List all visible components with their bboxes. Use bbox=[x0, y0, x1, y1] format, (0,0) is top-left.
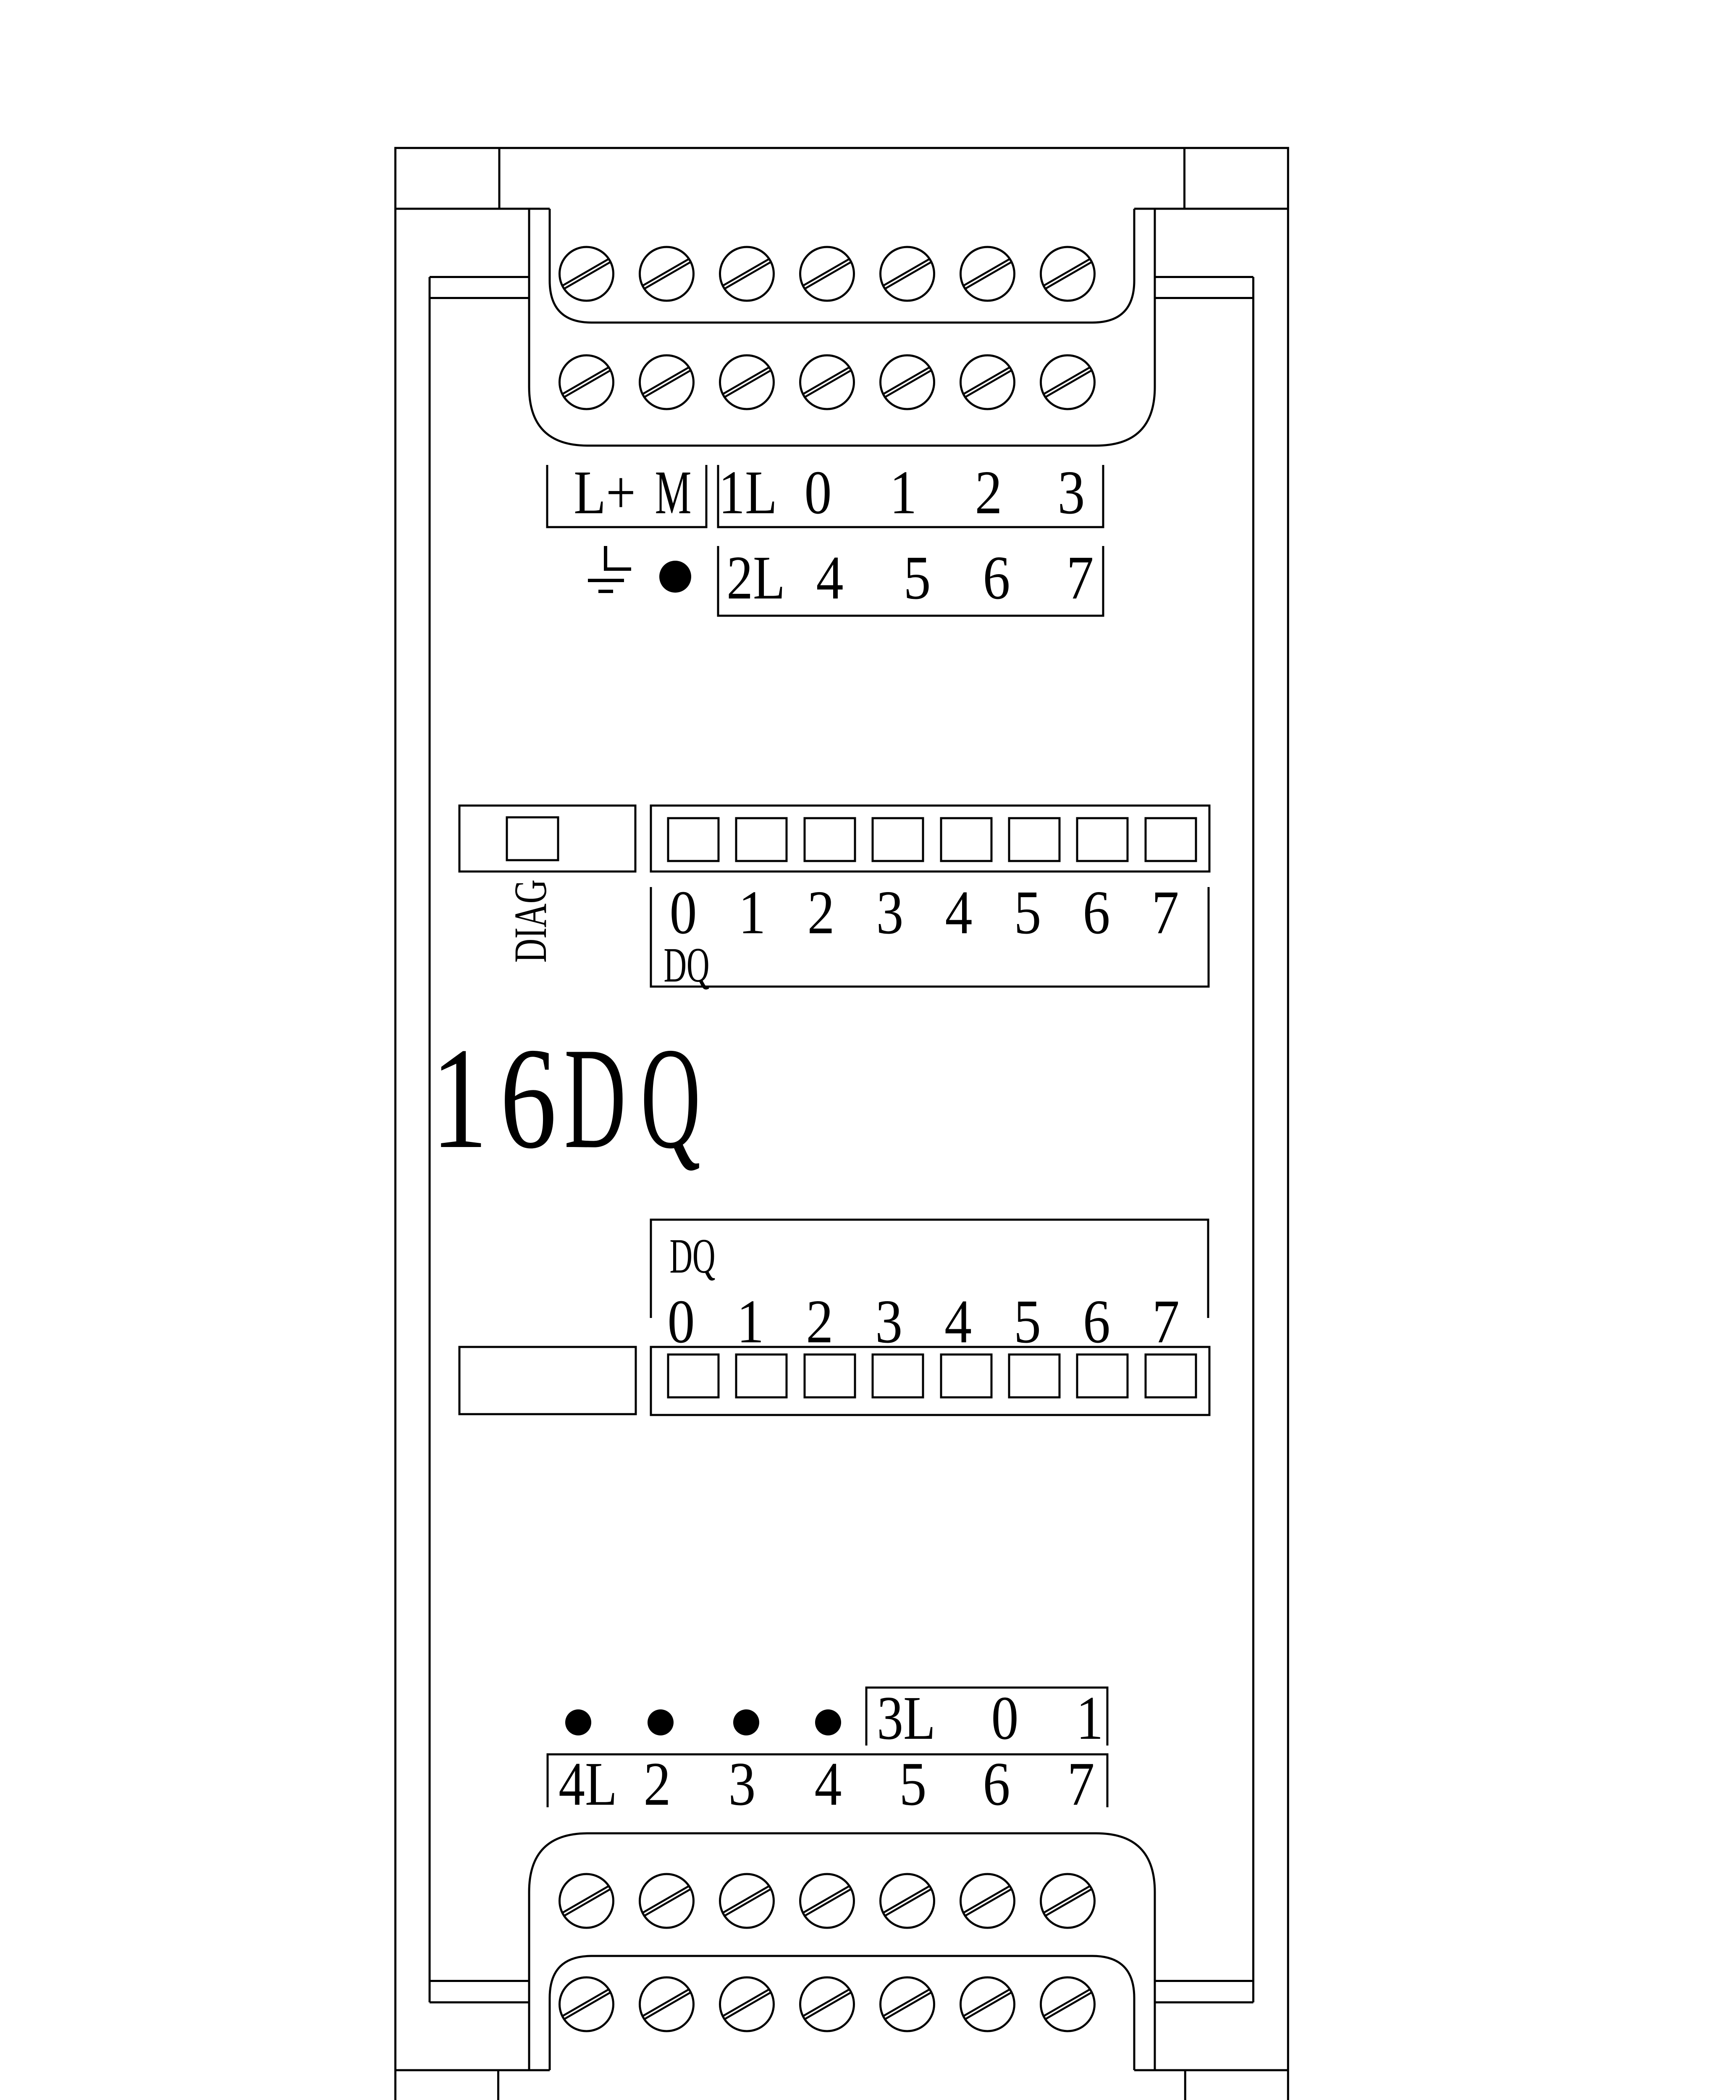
svg-text:0: 0 bbox=[667, 1287, 695, 1356]
svg-text:6: 6 bbox=[500, 1018, 557, 1179]
svg-text:6: 6 bbox=[983, 543, 1010, 612]
svg-text:1: 1 bbox=[1076, 1684, 1103, 1752]
svg-text:5: 5 bbox=[1014, 878, 1041, 947]
svg-text:0: 0 bbox=[991, 1684, 1018, 1752]
svg-text:4: 4 bbox=[945, 878, 972, 947]
svg-text:1: 1 bbox=[889, 458, 917, 527]
svg-text:3: 3 bbox=[875, 1287, 902, 1356]
svg-text:1: 1 bbox=[737, 1287, 764, 1356]
svg-text:2: 2 bbox=[806, 1287, 833, 1356]
svg-text:DQ: DQ bbox=[669, 1229, 715, 1284]
svg-text:2: 2 bbox=[807, 878, 834, 947]
svg-text:7: 7 bbox=[1066, 543, 1094, 612]
svg-text:DQ: DQ bbox=[663, 938, 709, 992]
svg-text:5: 5 bbox=[899, 1750, 926, 1818]
svg-text:0: 0 bbox=[804, 458, 831, 527]
svg-text:2: 2 bbox=[975, 458, 1002, 527]
svg-text:3L: 3L bbox=[877, 1684, 936, 1753]
svg-text:5: 5 bbox=[1014, 1287, 1041, 1356]
svg-text:M: M bbox=[655, 458, 692, 527]
svg-text:L+: L+ bbox=[574, 458, 636, 527]
svg-text:1L: 1L bbox=[719, 458, 777, 527]
svg-text:7: 7 bbox=[1067, 1750, 1094, 1818]
svg-text:DIAG: DIAG bbox=[505, 879, 556, 963]
svg-text:0: 0 bbox=[669, 878, 697, 947]
svg-text:4: 4 bbox=[814, 1750, 842, 1818]
svg-text:7: 7 bbox=[1152, 1287, 1180, 1356]
svg-text:5: 5 bbox=[903, 543, 931, 612]
svg-text:4: 4 bbox=[816, 543, 843, 612]
svg-text:1: 1 bbox=[738, 878, 766, 947]
svg-text:4: 4 bbox=[944, 1287, 972, 1356]
svg-text:1: 1 bbox=[431, 1018, 488, 1179]
svg-text:6: 6 bbox=[983, 1750, 1010, 1818]
svg-text:7: 7 bbox=[1151, 878, 1179, 947]
svg-text:3: 3 bbox=[728, 1750, 755, 1818]
svg-text:6: 6 bbox=[1083, 1287, 1110, 1356]
svg-text:2L: 2L bbox=[726, 543, 785, 612]
svg-text:3: 3 bbox=[876, 878, 903, 947]
svg-text:Q: Q bbox=[641, 1018, 700, 1179]
svg-text:4L: 4L bbox=[559, 1750, 617, 1819]
svg-text:2: 2 bbox=[643, 1750, 671, 1818]
svg-text:6: 6 bbox=[1083, 878, 1110, 947]
svg-text:D: D bbox=[564, 1018, 626, 1179]
svg-text:3: 3 bbox=[1057, 458, 1085, 527]
